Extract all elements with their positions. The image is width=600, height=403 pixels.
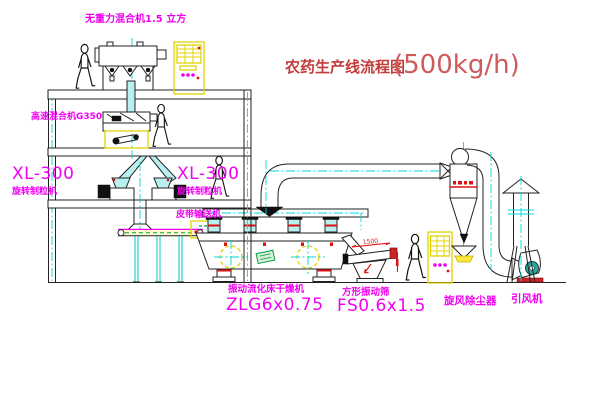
control-cabinet-1 (174, 42, 204, 94)
hsm-base (105, 131, 148, 148)
hsm-block (112, 116, 121, 121)
label-gravity-mixer: 无重力混合机1.5 立方 (84, 12, 186, 25)
mixer-end-plate (95, 48, 99, 62)
hsm-mid (103, 123, 150, 131)
screen-base (357, 279, 383, 283)
screen-hopper (353, 260, 386, 280)
dryer-body (196, 233, 352, 269)
screen-end-right (390, 248, 397, 259)
cabinet2-knobs (433, 263, 447, 267)
induced-draft-fan (512, 250, 543, 282)
cabinet-knobs (181, 73, 195, 77)
label-cyclone: 旋风除尘器 (443, 294, 497, 307)
label-high-speed-mixer: 高速混合机G350 (31, 110, 102, 122)
mixer-motor (157, 50, 166, 59)
conveyor-pulley-left (118, 230, 124, 236)
cabinet-indicator-1 (198, 47, 201, 50)
vibrating-screen (342, 213, 399, 283)
second-floor-slab (48, 148, 251, 156)
label-belt-conveyor: 皮带输送机 (175, 208, 221, 220)
person-figure-roof (76, 44, 95, 88)
belt-conveyor (118, 230, 203, 283)
label-granulator-left-model: XL-300 (12, 164, 74, 184)
roof-slab (48, 90, 251, 99)
screen-end-left (343, 254, 348, 264)
first-floor-slab (48, 200, 251, 208)
hsm-outlet (150, 114, 157, 121)
cyclone-discharge-bin (455, 256, 473, 262)
label-granulator-left-name: 旋转制粒机 (11, 185, 57, 197)
label-dryer-name: 振动流化床干燥机 (228, 283, 305, 295)
label-granulator-right-model: XL-300 (177, 164, 239, 184)
dryer-exhaust-pipe (256, 160, 452, 217)
hsm-belt-drive (113, 134, 139, 144)
label-screen-dimension: 1500 (363, 238, 379, 246)
fluid-bed-dryer (196, 209, 368, 282)
cyclone-separator (450, 142, 477, 262)
label-fan: 引风机 (511, 292, 543, 305)
granulator-left (98, 178, 134, 200)
label-screen-model: FS0.6x1.5 (337, 296, 426, 316)
label-dryer-model: ZLG6x0.75 (226, 295, 324, 315)
person-figure-ground (406, 234, 425, 280)
diagram-capacity: (500kg/h) (393, 50, 520, 80)
cyclone-vortex-cap (452, 149, 469, 166)
diagram-canvas: 无重力混合机1.5 立方 农药生产线流程图 (500kg/h) 高速混合机G35… (0, 0, 600, 403)
mixer-port-2 (137, 42, 143, 46)
cabinet-indicator-2 (197, 77, 200, 80)
conveyor-legs (135, 236, 182, 282)
hsm-top (103, 112, 150, 123)
person-figure-floor2 (153, 104, 171, 146)
riser-duct (127, 81, 135, 112)
control-cabinet-2 (428, 232, 452, 283)
mixer-discharge-cones (105, 66, 155, 81)
mixer-body (99, 46, 157, 66)
dryer-foot-right (313, 269, 335, 282)
diagram-title: 农药生产线流程图 (284, 58, 405, 76)
cyclone-cone-tip (460, 234, 468, 243)
mixer-port-1 (107, 42, 113, 46)
dryer-foot-left (213, 269, 235, 282)
high-speed-mixer (103, 112, 157, 148)
cad-flow-diagram: 无重力混合机1.5 立方 农药生产线流程图 (500kg/h) 高速混合机G35… (0, 0, 600, 403)
spring-mounts (206, 217, 339, 232)
label-granulator-right-name: 旋转制粒机 (176, 185, 222, 197)
cabinet2-indicator (447, 270, 450, 273)
